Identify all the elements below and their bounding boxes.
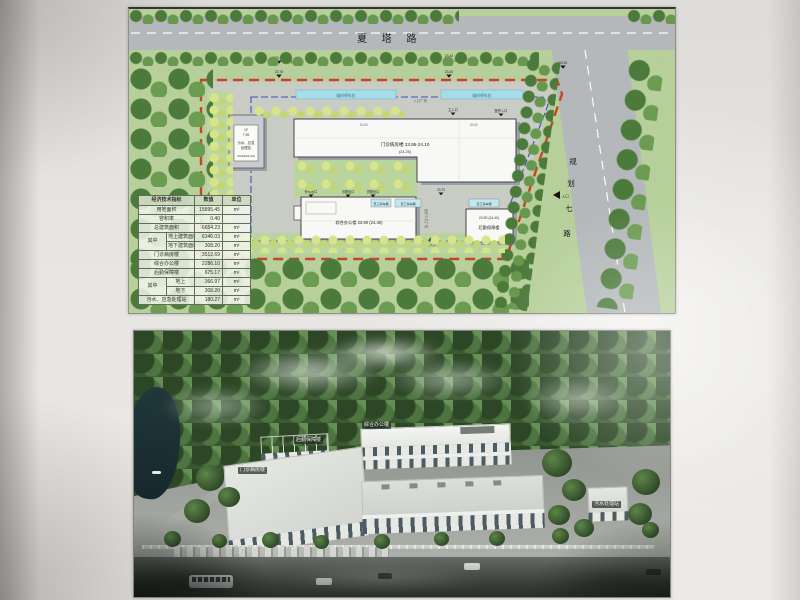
right-wing-building [361, 475, 545, 534]
svg-text:货物出口: 货物出口 [367, 189, 380, 194]
road-label-guihua-char: 规 [569, 156, 577, 166]
tree [632, 469, 660, 495]
tree [548, 505, 570, 525]
office-building-tag: 综合办公楼 [362, 422, 391, 429]
tree [218, 487, 240, 507]
table-row: 用地面积 15895.45 m² [139, 206, 251, 215]
svg-text:医护入口: 医护入口 [495, 108, 508, 113]
road-label-guihua-char: 七 [565, 204, 573, 213]
car [464, 563, 480, 570]
tree [164, 531, 181, 547]
svg-text:主入口: 主入口 [448, 107, 458, 112]
road-label-guihua-char: 划 [567, 178, 575, 188]
spot-elevation-marker: 23.76 [275, 70, 284, 78]
sewage-floors: 1F [244, 128, 248, 132]
table-row: 容积率 0.40 [139, 215, 251, 224]
clinic-building-tag: 门诊病房楼 [238, 467, 267, 474]
fog [162, 386, 272, 426]
car [378, 573, 392, 579]
svg-text:23.14: 23.14 [275, 56, 284, 60]
table-row: 总建筑面积 6654.23 m² [139, 224, 251, 233]
facade-windows [588, 511, 628, 521]
tree [542, 449, 572, 477]
entrance-plaza-label: 入口广场 [413, 98, 427, 103]
bus [189, 575, 233, 588]
economic-indicators-table: 经济技术指标 数值 单位 用地面积 15895.45 m² 容积率 0.40 总… [138, 195, 251, 305]
sewage-name-1: 污水、应急 [238, 140, 256, 145]
table-row: 其中 地上建筑面积 6346.03 m² [139, 233, 251, 242]
office-building-label: 综合办公楼 23.90 (24.40) [335, 219, 383, 226]
fog [384, 359, 514, 399]
rooftop-unit [460, 426, 494, 434]
svg-text:23.76: 23.76 [275, 70, 284, 74]
svg-text:污物出口: 污物出口 [342, 189, 355, 194]
tree [489, 531, 505, 546]
svg-text:次入口: 次入口 [426, 242, 436, 247]
fog [284, 565, 484, 593]
logistics-building-tag: 后勤保障楼 [294, 437, 323, 444]
spot-elevation-marker: 23.40 [445, 70, 454, 78]
tree [262, 532, 279, 548]
dimension-label: 84.80 [360, 123, 368, 127]
svg-text:23.32: 23.32 [559, 61, 568, 65]
header-indicator: 经济技术指标 [139, 196, 195, 206]
table-header-row: 经济技术指标 数值 单位 [139, 196, 251, 206]
outpatient-elevation: (24.25) [399, 150, 412, 154]
photographed-page: 临时停车位 临时停车位 1F 7.95 污水、应急 处理站 23.90(24.2… [0, 0, 800, 600]
parking-row [174, 547, 389, 557]
tree [552, 528, 569, 544]
table-row: 后勤保障楼 675.17 m² [139, 269, 251, 278]
logistics-building-label: 后勤保障楼 [479, 224, 500, 231]
site-entrance-arrow: 入口 [553, 191, 569, 199]
aerial-rendering-image: 综合办公楼 后勤保障楼 门诊病房楼 污水处理站 [133, 330, 671, 598]
boat [152, 471, 161, 474]
car [646, 569, 661, 575]
header-value: 数值 [195, 196, 223, 206]
tree [184, 499, 210, 523]
table-row: 综合办公楼 2286.10 m² [139, 260, 251, 269]
tree [642, 522, 659, 538]
table-row: 其中 地上 366.97 m² [139, 278, 251, 287]
tree [374, 534, 390, 549]
logistics-elevation: 23.90 (24.40) [479, 216, 499, 220]
fog [522, 376, 632, 421]
office-building [360, 423, 511, 473]
tree [434, 532, 449, 546]
spot-elevation-marker: 23.14 污物出口 [275, 56, 297, 64]
outpatient-building-label: 门诊病房楼 23.95-24.10 [381, 141, 430, 148]
staff-shed-label: 员工停车棚 [476, 201, 491, 206]
tree [212, 534, 227, 548]
sewage-building-tag: 污水处理站 [592, 501, 621, 508]
road-label-guihua-char: 路 [563, 228, 571, 238]
staff-shed-label: 员工停车棚 [400, 201, 415, 206]
svg-text:入口: 入口 [562, 195, 569, 199]
sewage-elevation: 23.90(24.20) [237, 154, 255, 158]
temp-parking-label: 临时停车位 [473, 93, 492, 98]
svg-text:污物出口: 污物出口 [284, 59, 297, 64]
site-plan-image: 临时停车位 临时停车位 1F 7.95 污水、应急 处理站 23.90(24.2… [128, 7, 676, 314]
staff-shed-label: 员工停车棚 [373, 201, 388, 206]
temp-parking-label: 临时停车位 [337, 93, 356, 98]
svg-text:23.44: 23.44 [445, 54, 454, 58]
svg-text:停车出口: 停车出口 [305, 189, 318, 194]
svg-text:23.40: 23.40 [445, 70, 454, 74]
road-label-xiata: 夏 塔 路 [357, 32, 423, 45]
header-unit: 单位 [223, 196, 251, 206]
tree [196, 465, 224, 491]
arrow-left-icon [553, 191, 560, 199]
sewage-name-2: 处理站 [241, 145, 252, 150]
car [316, 578, 332, 585]
office-building-annex [294, 206, 301, 220]
roof [587, 486, 628, 513]
tree [562, 479, 586, 501]
tree [314, 535, 329, 549]
spot-elevation-marker: 23.44 主要出入口 [445, 54, 470, 62]
svg-text:23.70: 23.70 [437, 188, 445, 192]
sewage-height: 7.95 [243, 133, 250, 137]
tree [574, 519, 594, 537]
staff-plaza-label: 医护人员广场 [424, 209, 429, 228]
table-row: 门诊病房楼 3512.69 m² [139, 251, 251, 260]
bus-windows [192, 577, 230, 582]
svg-text:主要出入口: 主要出入口 [454, 57, 470, 62]
table-row: 污水、应急处理站 180.27 m² [139, 296, 251, 305]
dimension-label: 84.80 [470, 123, 478, 127]
